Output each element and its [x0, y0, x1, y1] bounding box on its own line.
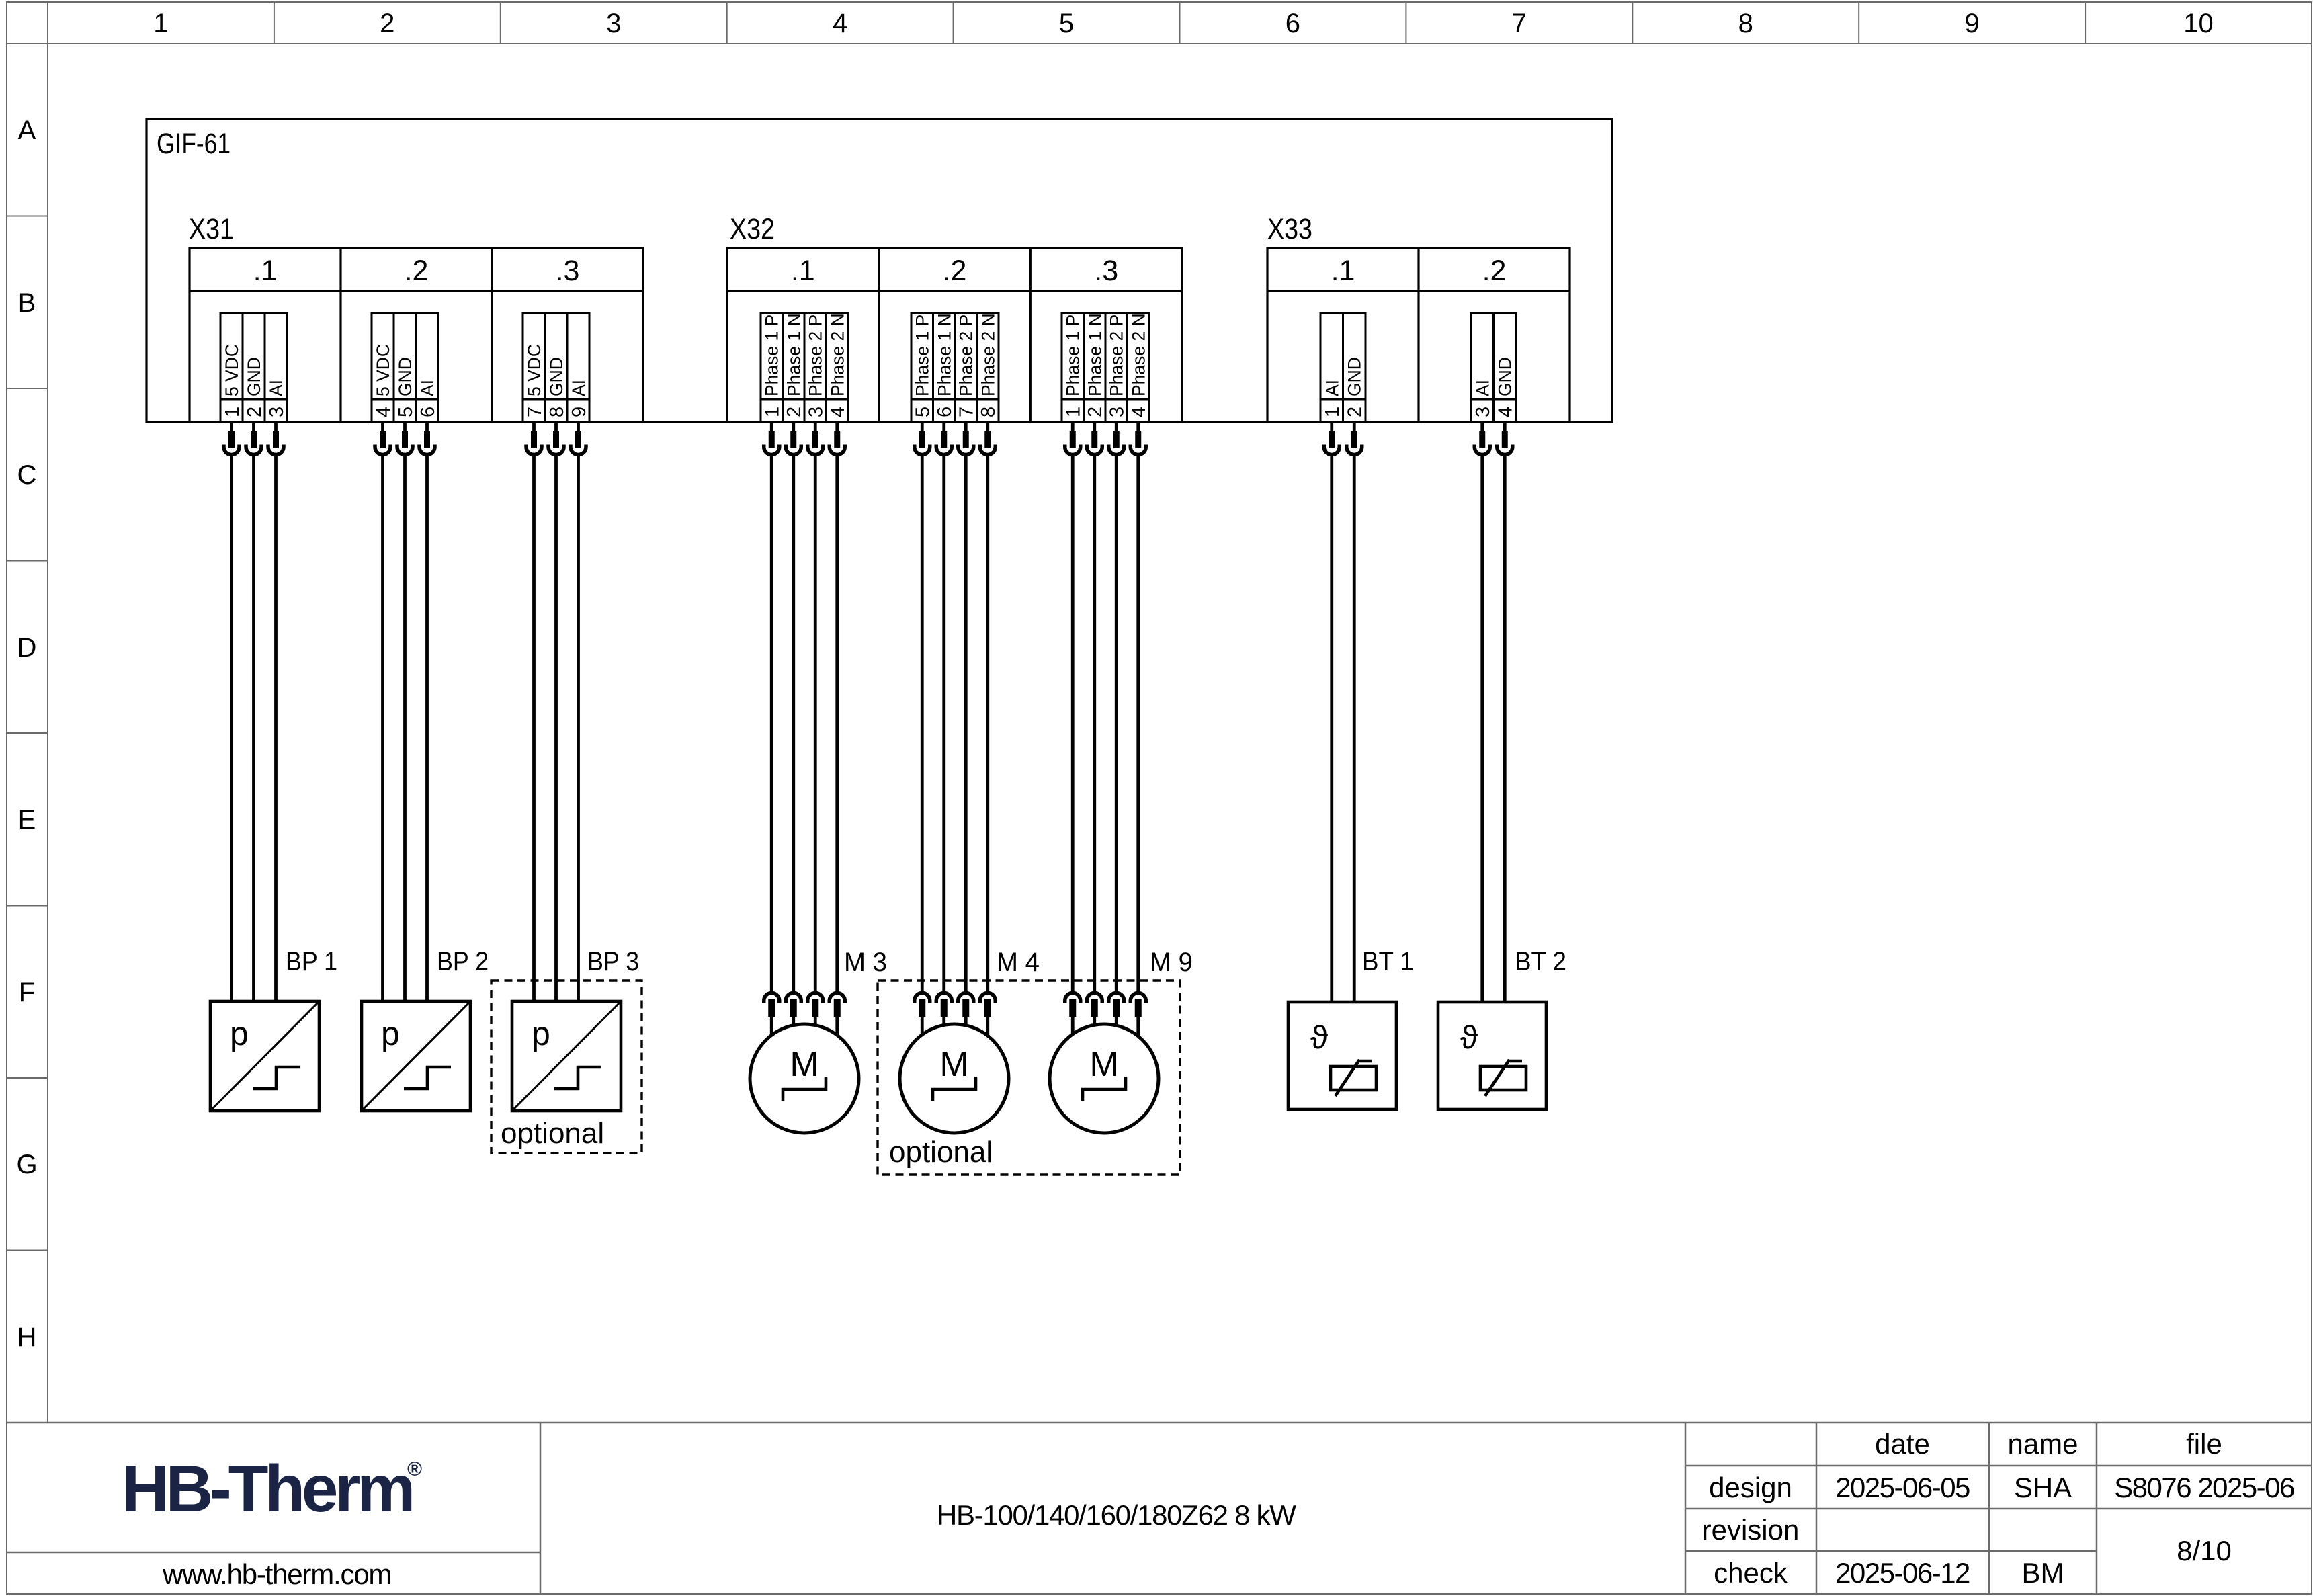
svg-text:2: 2: [1085, 407, 1106, 417]
svg-text:.2: .2: [1482, 255, 1507, 287]
svg-text:.3: .3: [556, 255, 580, 287]
svg-text:2: 2: [244, 407, 265, 417]
svg-text:BM: BM: [2022, 1557, 2064, 1589]
svg-text:8/10: 8/10: [2177, 1535, 2232, 1566]
svg-text:.2: .2: [943, 255, 967, 287]
svg-text:D: D: [17, 633, 37, 663]
svg-text:3: 3: [266, 407, 288, 417]
svg-text:5: 5: [1059, 9, 1074, 38]
svg-text:7: 7: [956, 407, 978, 417]
svg-text:.1: .1: [1331, 255, 1355, 287]
svg-text:p: p: [230, 1015, 249, 1052]
svg-text:Phase 1 P: Phase 1 P: [1063, 314, 1083, 396]
svg-text:AI: AI: [266, 380, 286, 396]
svg-text:6: 6: [1286, 9, 1300, 38]
svg-text:M 9: M 9: [1150, 948, 1193, 977]
svg-text:GIF-61: GIF-61: [157, 128, 230, 160]
svg-text:check: check: [1714, 1557, 1788, 1589]
svg-text:1: 1: [762, 407, 784, 417]
svg-text:BT 1: BT 1: [1362, 947, 1414, 976]
svg-text:3: 3: [606, 9, 621, 38]
svg-text:M 4: M 4: [997, 948, 1040, 977]
svg-text:9: 9: [569, 407, 590, 417]
svg-text:.1: .1: [791, 255, 815, 287]
svg-text:X31: X31: [189, 213, 234, 245]
svg-text:date: date: [1875, 1428, 1930, 1460]
svg-text:6: 6: [417, 407, 439, 417]
svg-text:X33: X33: [1267, 213, 1312, 245]
svg-text:AI: AI: [1322, 380, 1342, 396]
svg-text:E: E: [18, 805, 36, 835]
svg-text:Phase 2 P: Phase 2 P: [1107, 314, 1127, 396]
svg-text:Phase 2 N: Phase 2 N: [978, 313, 998, 396]
svg-text:6: 6: [934, 407, 956, 417]
svg-text:file: file: [2186, 1428, 2222, 1460]
svg-text:ϑ: ϑ: [1460, 1020, 1478, 1056]
svg-text:BT 2: BT 2: [1515, 947, 1566, 976]
svg-text:3: 3: [1107, 407, 1128, 417]
svg-text:M: M: [1089, 1045, 1118, 1084]
svg-text:Phase 1 N: Phase 1 N: [1085, 313, 1105, 396]
svg-text:BP 3: BP 3: [587, 947, 639, 976]
svg-text:9: 9: [1964, 9, 1979, 38]
svg-text:1: 1: [1063, 407, 1085, 417]
svg-text:4: 4: [827, 407, 849, 417]
svg-text:Phase 1 N: Phase 1 N: [934, 313, 954, 396]
svg-text:1: 1: [1322, 407, 1343, 417]
svg-text:GND: GND: [1345, 357, 1365, 396]
svg-text:.1: .1: [253, 255, 278, 287]
svg-text:7: 7: [1512, 9, 1527, 38]
svg-text:7: 7: [524, 407, 546, 417]
svg-text:C: C: [17, 460, 37, 490]
svg-text:4: 4: [1128, 407, 1150, 417]
svg-text:X32: X32: [730, 213, 775, 245]
svg-text:5 VDC: 5 VDC: [222, 344, 242, 396]
svg-text:8: 8: [1738, 9, 1753, 38]
svg-text:5 VDC: 5 VDC: [524, 344, 544, 396]
svg-text:AI: AI: [569, 380, 589, 396]
svg-text:HB-100/140/160/180Z62 8 kW: HB-100/140/160/180Z62 8 kW: [937, 1499, 1296, 1531]
svg-text:M 3: M 3: [844, 948, 887, 977]
svg-text:4: 4: [373, 407, 394, 417]
svg-text:2025-06-05: 2025-06-05: [1835, 1472, 1970, 1503]
svg-text:2: 2: [784, 407, 805, 417]
svg-text:ϑ: ϑ: [1310, 1020, 1328, 1056]
svg-text:Phase 2 P: Phase 2 P: [806, 314, 826, 396]
svg-text:1: 1: [153, 9, 168, 38]
svg-text:Phase 1 P: Phase 1 P: [913, 314, 933, 396]
svg-text:optional: optional: [501, 1117, 604, 1150]
svg-text:8: 8: [546, 407, 568, 417]
svg-text:Phase 2 P: Phase 2 P: [956, 314, 976, 396]
svg-text:4: 4: [833, 9, 847, 38]
svg-text:SHA: SHA: [2014, 1472, 2072, 1503]
svg-text:®: ®: [407, 1458, 422, 1480]
svg-text:H: H: [17, 1322, 37, 1352]
svg-text:HB-Therm: HB-Therm: [122, 1452, 412, 1525]
svg-text:M: M: [939, 1045, 968, 1084]
svg-text:1: 1: [222, 407, 243, 417]
svg-text:p: p: [381, 1015, 400, 1052]
svg-text:optional: optional: [889, 1136, 993, 1169]
svg-text:2025-06-12: 2025-06-12: [1835, 1557, 1970, 1589]
svg-text:5 VDC: 5 VDC: [373, 344, 393, 396]
svg-text:AI: AI: [417, 380, 437, 396]
svg-text:AI: AI: [1472, 380, 1492, 396]
svg-text:5: 5: [913, 407, 934, 417]
svg-text:F: F: [19, 978, 35, 1007]
svg-text:GND: GND: [395, 357, 415, 396]
svg-text:revision: revision: [1702, 1514, 1800, 1546]
svg-text:Phase 1 P: Phase 1 P: [762, 314, 782, 396]
svg-text:www.hb-therm.com: www.hb-therm.com: [162, 1558, 391, 1590]
svg-text:p: p: [532, 1015, 550, 1052]
svg-text:S8076 2025-06: S8076 2025-06: [2114, 1472, 2294, 1503]
svg-text:4: 4: [1495, 407, 1517, 417]
svg-text:GND: GND: [244, 357, 264, 396]
svg-text:GND: GND: [546, 357, 566, 396]
svg-text:8: 8: [978, 407, 999, 417]
svg-text:A: A: [18, 116, 36, 145]
svg-text:Phase 2 N: Phase 2 N: [827, 313, 847, 396]
svg-text:G: G: [16, 1150, 37, 1179]
svg-text:Phase 2 N: Phase 2 N: [1128, 313, 1148, 396]
svg-text:3: 3: [806, 407, 827, 417]
svg-text:design: design: [1709, 1472, 1792, 1503]
svg-text:name: name: [2007, 1428, 2078, 1460]
svg-text:5: 5: [395, 407, 417, 417]
svg-text:10: 10: [2183, 9, 2214, 38]
svg-text:BP 2: BP 2: [437, 947, 489, 976]
svg-text:Phase 1 N: Phase 1 N: [784, 313, 804, 396]
svg-text:2: 2: [1345, 407, 1366, 417]
svg-text:3: 3: [1472, 407, 1494, 417]
svg-text:M: M: [790, 1045, 818, 1084]
svg-text:B: B: [18, 288, 36, 318]
svg-text:BP 1: BP 1: [286, 947, 337, 976]
svg-text:2: 2: [380, 9, 394, 38]
svg-text:.2: .2: [405, 255, 429, 287]
svg-text:GND: GND: [1495, 357, 1515, 396]
svg-text:.3: .3: [1094, 255, 1118, 287]
